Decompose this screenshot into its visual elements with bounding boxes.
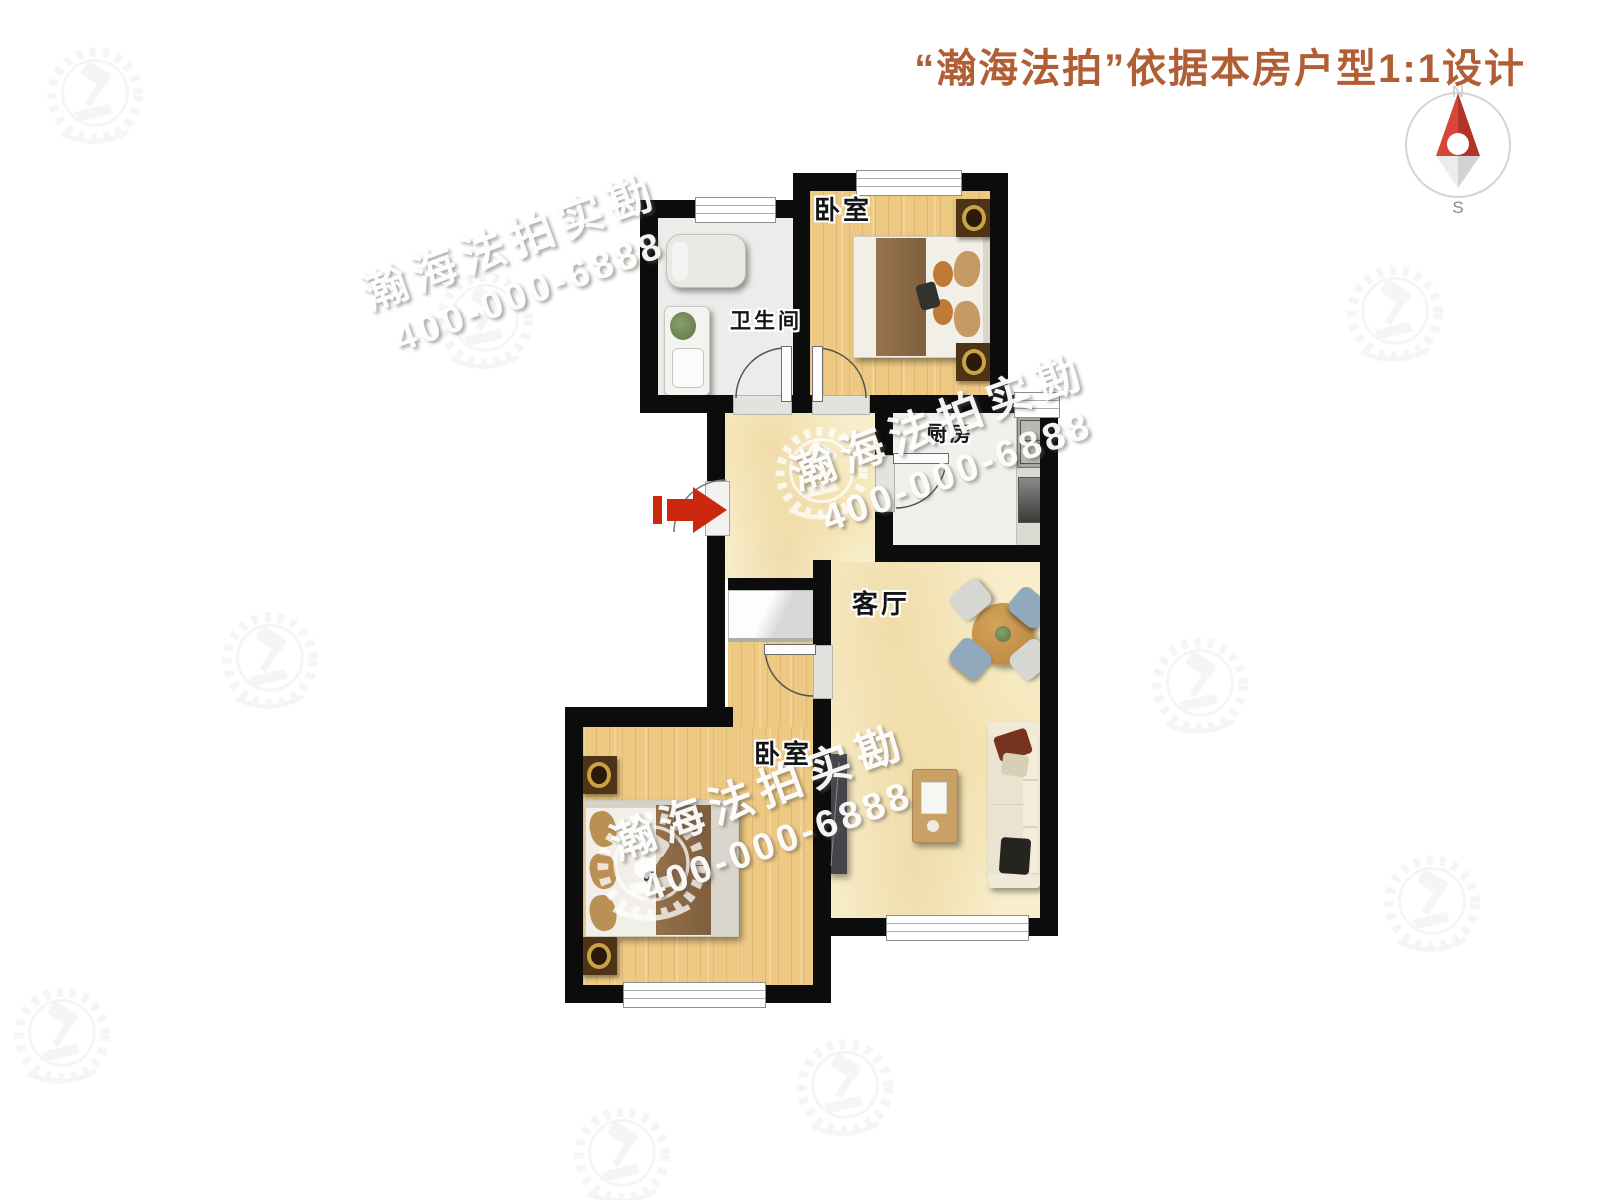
wall-segment xyxy=(990,173,1008,408)
pillow xyxy=(1001,752,1030,777)
headboard xyxy=(983,237,990,357)
laurel-watermark-icon xyxy=(562,1100,682,1200)
living-room-window xyxy=(886,915,1029,941)
blanket xyxy=(656,805,711,935)
bathtub xyxy=(666,234,746,288)
folded-sheet xyxy=(711,801,738,936)
nightstand-lamp xyxy=(956,199,992,237)
wall-segment xyxy=(813,697,831,985)
magazine xyxy=(921,782,947,814)
window-line xyxy=(624,998,765,999)
wall-segment xyxy=(640,200,658,413)
bed-bottom-bedroom xyxy=(585,800,739,937)
compass-south-label: S xyxy=(1452,198,1463,216)
pillow xyxy=(587,851,620,892)
window-line xyxy=(1015,408,1059,409)
bathroom-sink xyxy=(672,348,704,388)
plant-icon xyxy=(670,312,696,340)
hallway-floor xyxy=(725,413,875,580)
wall-segment xyxy=(640,395,733,413)
bedroom-top-label: 卧室 xyxy=(814,190,872,227)
window-line xyxy=(1015,400,1059,401)
watermark-brand-text: 瀚海法拍实勘 xyxy=(342,158,681,328)
window-line xyxy=(624,990,765,991)
window-line xyxy=(696,213,775,214)
wall-segment xyxy=(875,545,1058,562)
sink-basin xyxy=(1020,420,1041,441)
sofa-armrest xyxy=(988,874,1040,888)
entrance-arrow-icon xyxy=(653,483,731,537)
page-title: “瀚海法拍”依据本房户型1:1设计 xyxy=(914,36,1526,94)
kitchen-window xyxy=(1014,392,1060,418)
wall-segment xyxy=(875,413,893,455)
kitchen-door-leaf xyxy=(893,453,949,464)
wall-segment xyxy=(790,395,812,413)
pillow xyxy=(999,837,1031,875)
nightstand-lamp xyxy=(581,937,617,975)
wall-segment xyxy=(1040,395,1058,936)
laurel-watermark-icon xyxy=(1372,848,1492,968)
table-plant-icon xyxy=(995,626,1011,642)
wall-segment xyxy=(707,532,725,727)
bedroom-bottom-label: 卧室 xyxy=(754,734,812,771)
dish xyxy=(927,820,939,832)
plush-toy-dark xyxy=(644,871,657,884)
wall-segment xyxy=(707,413,725,483)
nightstand-lamp xyxy=(956,343,992,381)
pillow xyxy=(587,893,620,934)
pillow xyxy=(587,809,620,850)
bedroom-bottom-window xyxy=(623,982,766,1008)
pillow xyxy=(952,300,982,339)
laurel-watermark-icon xyxy=(425,265,545,385)
kitchen-door-threshold xyxy=(875,455,895,512)
wall-segment xyxy=(793,173,810,413)
wall-segment xyxy=(565,707,583,1003)
laurel-watermark-icon xyxy=(1335,258,1455,378)
laurel-watermark-icon xyxy=(1140,630,1260,750)
wall-segment xyxy=(565,707,733,727)
window-line xyxy=(857,186,961,187)
wall-segment xyxy=(728,578,813,590)
bathroom-window xyxy=(695,197,776,223)
bed-top-bedroom xyxy=(853,236,991,358)
bedroom-bottom-door-leaf xyxy=(764,644,816,655)
pillow xyxy=(952,249,983,288)
pillow xyxy=(933,261,953,287)
coffee-table xyxy=(912,769,958,843)
floor-plan-page: 卫生间 卧室 厨房 客厅 卧室 瀚海法拍实勘 400-000-6888 瀚海法拍… xyxy=(0,0,1600,1200)
nightstand-lamp xyxy=(581,756,617,794)
closet-cabinet xyxy=(728,590,815,642)
laurel-watermark-icon xyxy=(210,605,330,725)
bathroom-label: 卫生间 xyxy=(730,305,802,335)
sofa xyxy=(988,722,1040,888)
bedroom-top-door-leaf xyxy=(812,346,823,402)
laurel-watermark-icon xyxy=(2,980,122,1100)
seat-seam xyxy=(990,804,1024,805)
sink-basin xyxy=(1020,443,1041,464)
wall-segment xyxy=(868,395,1008,413)
kitchen-label: 厨房 xyxy=(926,418,974,448)
wall-segment xyxy=(813,560,831,645)
bedroom-bottom-door-threshold xyxy=(813,645,833,699)
living-room-label: 客厅 xyxy=(852,584,910,621)
window-line xyxy=(857,178,961,179)
bathtub-pillow xyxy=(672,241,688,281)
compass-icon: N S xyxy=(1398,82,1518,216)
bathroom-door-leaf xyxy=(781,346,792,402)
window-line xyxy=(887,931,1028,932)
laurel-watermark-icon xyxy=(785,1032,905,1152)
window-line xyxy=(696,205,775,206)
window-line xyxy=(887,923,1028,924)
laurel-watermark-icon xyxy=(35,40,155,160)
